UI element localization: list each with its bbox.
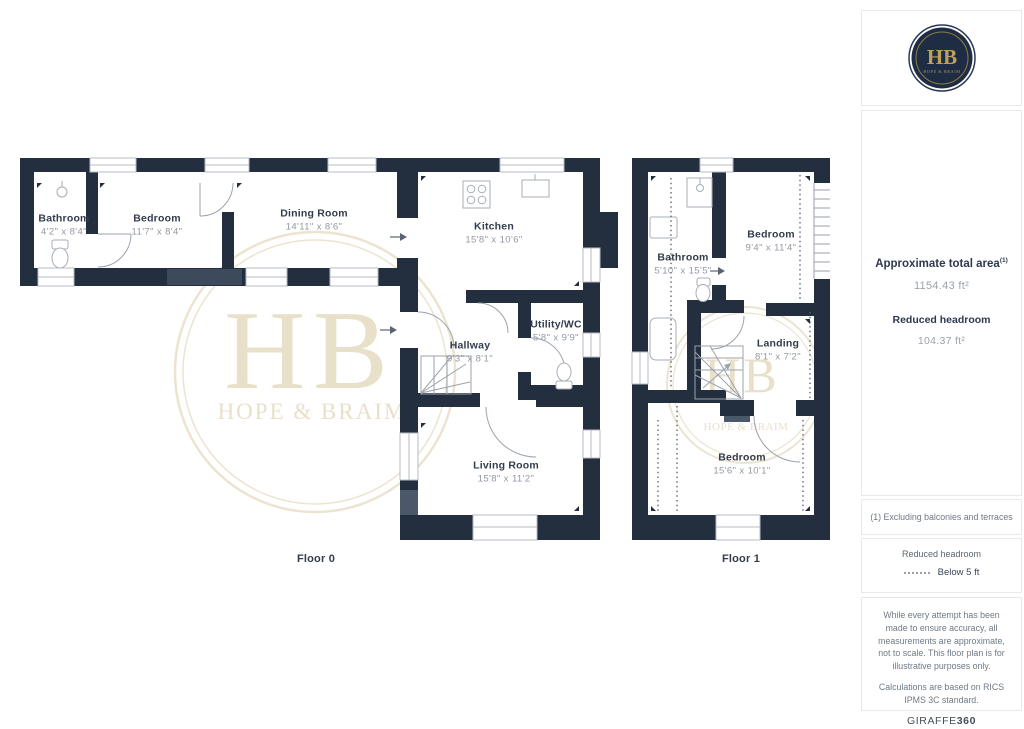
floor-plan-area: HB HOPE & BRAIM HB HOPE & BRAIM xyxy=(0,0,860,724)
eaves-hatch xyxy=(814,183,830,279)
disclaimer-panel: While every attempt has been made to ens… xyxy=(861,597,1022,711)
watermark-name: HOPE & BRAIM xyxy=(704,421,789,433)
footnote-marker: (1) xyxy=(1000,257,1008,264)
logo-name: HOPE & BRAIM xyxy=(923,69,960,74)
reduced-headroom-value: 104.37 ft² xyxy=(862,335,1021,347)
room-label-kitchen: Kitchen 15'8" x 10'6" xyxy=(465,221,522,246)
stove-icon xyxy=(463,181,490,208)
brand-logo-panel: HB HOPE & BRAIM xyxy=(861,10,1022,106)
room-label-bedroom2-f1: Bedroom 15'6" x 10'1" xyxy=(713,452,770,477)
sink-icon xyxy=(57,187,67,197)
room-label-bathroom-f1: Bathroom 5'10" x 15'5" xyxy=(654,252,711,277)
floor1-title: Floor 1 xyxy=(722,553,760,565)
brand-logo-icon: HB HOPE & BRAIM xyxy=(907,23,977,93)
floor-plan-canvas: HB HOPE & BRAIM HB HOPE & BRAIM xyxy=(0,0,860,724)
legend-item-label: Below 5 ft xyxy=(938,567,980,578)
watermark-name: HOPE & BRAIM xyxy=(218,399,407,424)
logo-monogram: HB xyxy=(926,45,956,69)
room-label-utility-wc: Utility/WC 5'8" x 9'9" xyxy=(530,319,582,344)
toilet-icon xyxy=(557,363,571,381)
room-label-hallway: Hallway 9'3" x 8'1" xyxy=(447,340,493,365)
footnote-panel: (1) Excluding balconies and terraces xyxy=(861,499,1022,535)
area-summary-panel: Approximate total area(1) 1154.43 ft² Re… xyxy=(861,110,1022,496)
disclaimer-text-2: Calculations are based on RICS IPMS 3C s… xyxy=(874,681,1009,707)
footnote-text: (1) Excluding balconies and terraces xyxy=(870,512,1012,522)
floor-plan-page: { "brand": { "logo_monogram": "HB", "log… xyxy=(0,0,1024,724)
legend-row: Below 5 ft xyxy=(862,567,1021,578)
legend-title: Reduced headroom xyxy=(862,549,1021,559)
room-label-landing: Landing 8'1" x 7'2" xyxy=(755,338,801,363)
kitchen-sink-icon xyxy=(522,180,549,197)
legend-panel: Reduced headroom Below 5 ft xyxy=(861,538,1022,593)
vanity-icon xyxy=(650,217,677,238)
total-area-value: 1154.43 ft² xyxy=(862,280,1021,292)
room-label-bathroom-f0: Bathroom 4'2" x 8'4" xyxy=(38,213,89,238)
room-label-bedroom1-f1: Bedroom 9'4" x 11'4" xyxy=(746,229,797,254)
dotted-line-sample xyxy=(904,572,930,574)
sidebar: HB HOPE & BRAIM Approximate total area(1… xyxy=(861,10,1022,711)
room-label-dining-room: Dining Room 14'11" x 8'6" xyxy=(280,208,348,233)
room-label-bedroom-f0: Bedroom 11'7" x 8'4" xyxy=(132,213,183,238)
disclaimer-text-1: While every attempt has been made to ens… xyxy=(874,609,1009,673)
giraffe360-brand: GIRAFFE360 xyxy=(874,714,1009,729)
floor0-title: Floor 0 xyxy=(297,553,335,565)
bathtub-icon xyxy=(650,318,676,360)
total-area-label: Approximate total area(1) xyxy=(862,257,1021,270)
room-label-living-room: Living Room 15'8" x 11'2" xyxy=(473,460,539,485)
watermark-monogram: HB xyxy=(224,289,396,413)
reduced-headroom-label: Reduced headroom xyxy=(862,314,1021,326)
